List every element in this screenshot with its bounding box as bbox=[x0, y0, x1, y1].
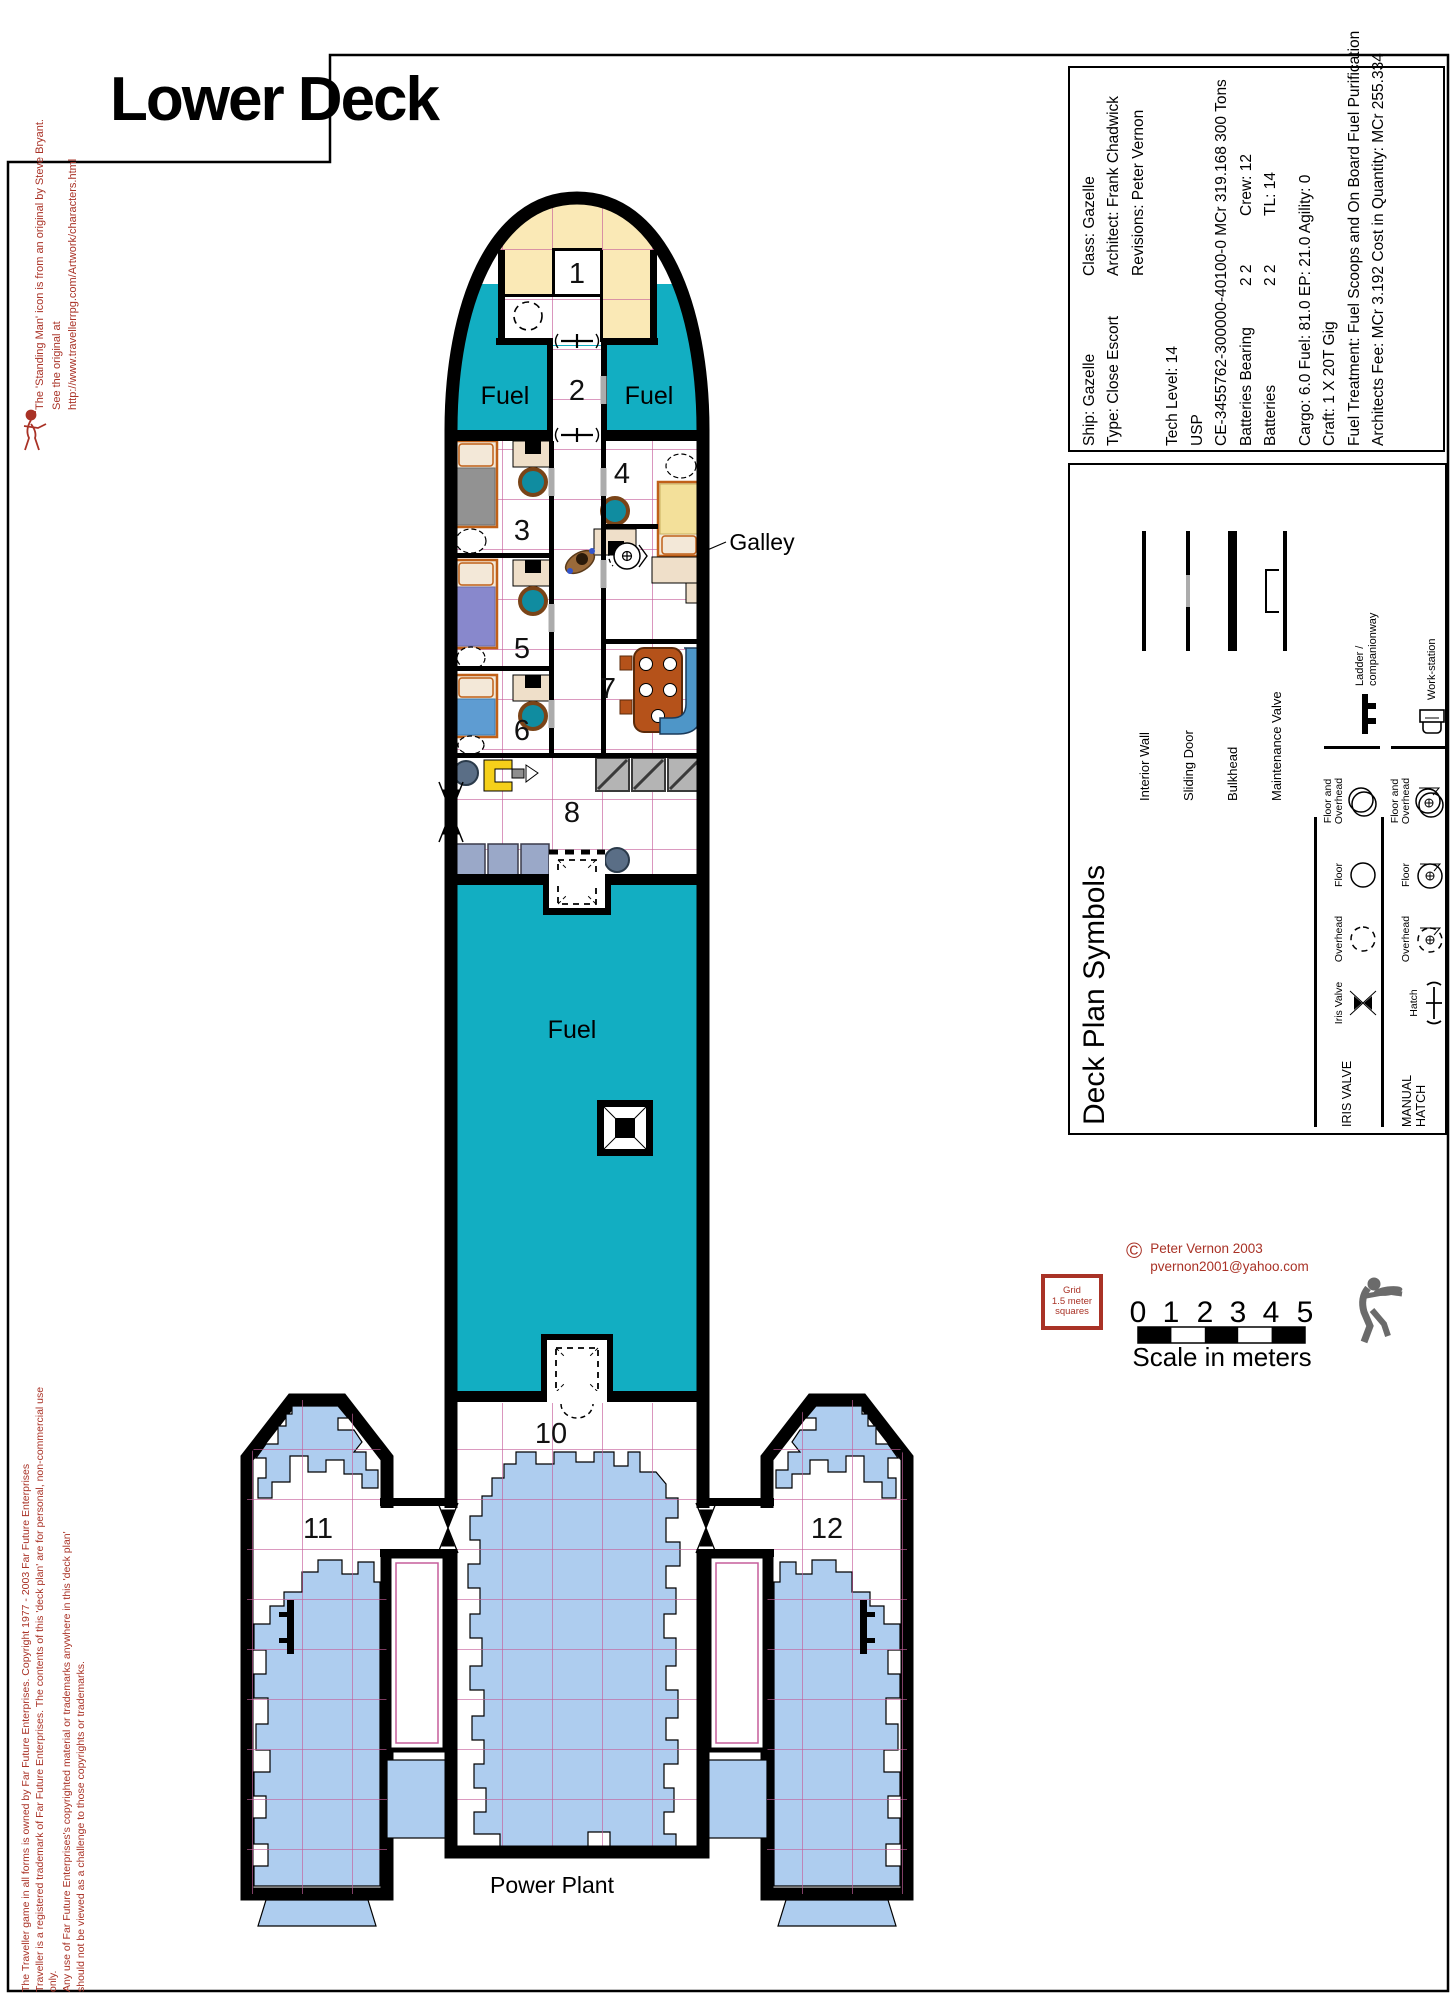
info-usp-code: CE-3455762-300000-40100-0 MCr 319.168 30… bbox=[1210, 78, 1234, 446]
toilet bbox=[457, 647, 485, 669]
workstation-icon bbox=[1417, 706, 1447, 736]
legend-ladder-item: Ladder /companionway bbox=[1354, 613, 1380, 736]
info-ship: Ship: Gazelle bbox=[1078, 276, 1102, 446]
info-crew: Crew: 12 bbox=[1235, 154, 1259, 216]
galley-label: Galley bbox=[729, 529, 795, 555]
svg-text:0: 0 bbox=[1130, 1296, 1147, 1329]
legend-walls-group: Interior Wall Sliding Door Bulkhead Main… bbox=[1122, 471, 1298, 801]
maintenance-valve-icon bbox=[1265, 531, 1287, 651]
info-tech-level: Tech Level: 14 bbox=[1161, 78, 1185, 446]
scale-bar: 0 1 2 3 4 5 Scale in meters bbox=[1130, 1296, 1314, 1372]
legend-manual-group: MANUAL HATCH Hatch Overhead Floor Floor … bbox=[1381, 472, 1447, 1127]
fuel-label-main: Fuel bbox=[548, 1016, 597, 1044]
author-credit: © Peter Vernon 2003 pvernon2001@yahoo.co… bbox=[1126, 1240, 1309, 1276]
info-batteries: Batteries bbox=[1259, 286, 1283, 446]
deck-plan-page: Lower Deck bbox=[0, 0, 1455, 2000]
copyright-icon: © bbox=[1126, 1240, 1142, 1262]
bed-blanket-blue bbox=[457, 699, 495, 735]
desk-console bbox=[525, 441, 541, 454]
chair bbox=[520, 469, 546, 495]
room-4-number: 4 bbox=[614, 458, 630, 490]
info-class: Class: Gazelle bbox=[1078, 78, 1102, 276]
bed-blanket-purple bbox=[457, 587, 495, 646]
manual-hatch-icon bbox=[1421, 981, 1447, 1025]
room-3-number: 3 bbox=[514, 515, 530, 547]
bulkhead-icon bbox=[1228, 531, 1237, 651]
toilet bbox=[456, 529, 486, 553]
engine-nozzle-right bbox=[778, 1900, 896, 1926]
sliding-door-icon bbox=[1186, 531, 1190, 651]
fuel-scoop-symbol bbox=[597, 1100, 653, 1156]
legend-maintenance-valve-label: Maintenance Valve bbox=[1269, 651, 1284, 801]
room-7-number: 7 bbox=[600, 673, 616, 705]
room-8-number: 8 bbox=[564, 797, 580, 829]
info-revisions: Revisions: Peter Vernon bbox=[1127, 78, 1151, 276]
fuel-tank-main bbox=[451, 880, 703, 1397]
legend-sliding-door-label: Sliding Door bbox=[1181, 651, 1196, 801]
room-10-number: 10 bbox=[535, 1418, 567, 1450]
fuel-port bbox=[454, 761, 478, 785]
machinery-bridge-right bbox=[703, 1760, 767, 1838]
info-cargo: Cargo: 6.0 Fuel: 81.0 EP: 21.0 Agility: … bbox=[1294, 78, 1318, 446]
info-fuel-treatment: Fuel Treatment: Fuel Scoops and On Board… bbox=[1343, 78, 1367, 446]
toilet bbox=[458, 736, 484, 754]
legend-bulkhead-label: Bulkhead bbox=[1225, 651, 1240, 801]
legend-title: Deck Plan Symbols bbox=[1078, 469, 1112, 1125]
bed-pillow bbox=[459, 444, 493, 466]
manual-overhead-icon bbox=[1413, 921, 1447, 957]
legend-workstation-item: Work-station bbox=[1417, 638, 1447, 736]
info-craft: Craft: 1 X 20T Gig bbox=[1318, 78, 1342, 446]
standing-man-icon bbox=[1363, 1278, 1403, 1342]
ship-info-text: Ship: GazelleClass: Gazelle Type: Close … bbox=[1078, 78, 1438, 446]
info-architect: Architect: Frank Chadwick bbox=[1102, 78, 1126, 276]
legend-iris-group: IRIS VALVE Iris Valve Overhead Floor Flo… bbox=[1314, 472, 1380, 1127]
standing-man-note: The 'Standing Man' icon is from an origi… bbox=[32, 80, 70, 410]
cargo-crates bbox=[596, 758, 701, 791]
grid-note-box: Grid 1.5 meter squares bbox=[1041, 1274, 1103, 1330]
iris-valve-icon bbox=[1346, 985, 1380, 1021]
room-2-number: 2 bbox=[569, 375, 585, 407]
info-type: Type: Close Escort bbox=[1102, 276, 1126, 446]
legend-interior-wall-label: Interior Wall bbox=[1137, 651, 1152, 801]
iris-overhead-icon bbox=[1346, 921, 1380, 957]
ladder-icon bbox=[1354, 692, 1380, 736]
scale-caption: Scale in meters bbox=[1132, 1342, 1311, 1372]
legend-manual-header: MANUAL HATCH bbox=[1400, 1035, 1428, 1127]
bed-blanket-gray bbox=[457, 468, 495, 525]
iris-floor-icon bbox=[1346, 857, 1380, 893]
interior-wall-icon bbox=[1142, 531, 1146, 651]
legend-iris-header: IRIS VALVE bbox=[1340, 1035, 1354, 1127]
author-email: pvernon2001@yahoo.com bbox=[1150, 1259, 1309, 1274]
legend-content: Deck Plan Symbols Interior Wall Sliding … bbox=[1076, 469, 1445, 1129]
lift-shaft-lower bbox=[541, 1334, 613, 1397]
info-architects-fee: Architects Fee: MCr 3.192 Cost in Quanti… bbox=[1367, 78, 1391, 446]
svg-text:1: 1 bbox=[1163, 1296, 1180, 1329]
fuel-port bbox=[605, 848, 629, 872]
info-tl: TL: 14 bbox=[1259, 172, 1283, 216]
far-future-copyright-note: The Traveller game in all forms is owned… bbox=[20, 1380, 74, 1992]
power-plant-label: Power Plant bbox=[490, 1872, 615, 1898]
room-5-number: 5 bbox=[514, 633, 530, 665]
manual-floor-overhead-icon bbox=[1413, 781, 1447, 821]
fuel-label-right: Fuel bbox=[625, 382, 674, 410]
machinery-bridge-left bbox=[387, 1760, 451, 1838]
lockers bbox=[455, 844, 549, 875]
engine-nozzle-left bbox=[258, 1900, 376, 1926]
toilet bbox=[666, 454, 696, 478]
room-12-number: 12 bbox=[811, 1513, 843, 1545]
room-1-number: 1 bbox=[569, 258, 585, 290]
room-6-number: 6 bbox=[514, 715, 530, 747]
fuel-label-left: Fuel bbox=[481, 382, 530, 410]
standing-man-credit-icon bbox=[24, 411, 46, 451]
manual-floor-icon bbox=[1413, 857, 1447, 893]
svg-text:2: 2 bbox=[1197, 1296, 1214, 1329]
svg-text:4: 4 bbox=[1263, 1296, 1280, 1329]
info-batteries-bearing: Batteries Bearing bbox=[1235, 286, 1259, 446]
svg-text:5: 5 bbox=[1297, 1296, 1314, 1329]
author-name: Peter Vernon 2003 bbox=[1150, 1241, 1263, 1256]
svg-text:3: 3 bbox=[1230, 1296, 1247, 1329]
info-usp: USP bbox=[1186, 78, 1210, 446]
iris-floor-overhead-icon bbox=[1346, 781, 1380, 821]
room-11-number: 11 bbox=[303, 1513, 333, 1545]
bed-blanket-yellow bbox=[660, 484, 698, 534]
